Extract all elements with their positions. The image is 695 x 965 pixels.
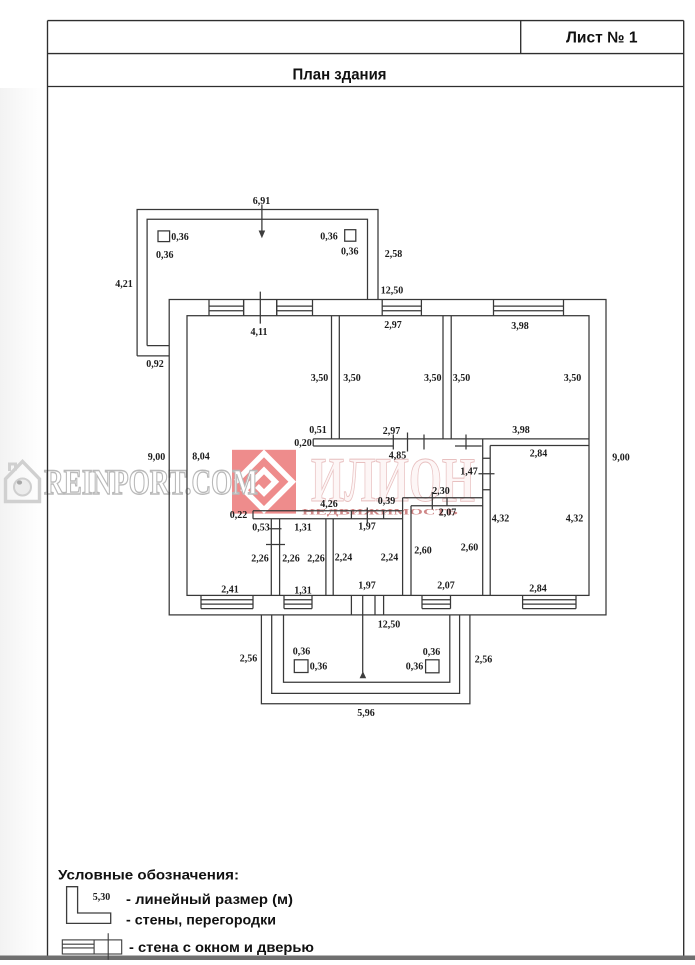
svg-text:4,21: 4,21 <box>115 279 133 290</box>
svg-text:12,50: 12,50 <box>378 620 401 631</box>
svg-text:2,56: 2,56 <box>475 655 493 666</box>
svg-text:5,30: 5,30 <box>93 892 111 903</box>
svg-text:6,91: 6,91 <box>253 196 271 207</box>
svg-text:Условные обозначения:: Условные обозначения: <box>58 867 239 883</box>
svg-text:1,97: 1,97 <box>358 581 376 592</box>
svg-text:3,50: 3,50 <box>424 373 442 384</box>
svg-text:2,41: 2,41 <box>221 585 239 596</box>
svg-text:0,36: 0,36 <box>171 232 189 243</box>
svg-text:Лист № 1: Лист № 1 <box>566 30 638 47</box>
svg-text:2,07: 2,07 <box>439 508 457 519</box>
svg-text:2,26: 2,26 <box>282 554 300 565</box>
svg-text:REINPORT.COM: REINPORT.COM <box>44 462 258 502</box>
svg-text:8,04: 8,04 <box>192 452 210 463</box>
svg-text:0,39: 0,39 <box>378 496 396 507</box>
svg-text:9,00: 9,00 <box>148 452 166 463</box>
svg-text:3,50: 3,50 <box>311 373 329 384</box>
svg-text:2,97: 2,97 <box>383 426 401 437</box>
svg-text:3,50: 3,50 <box>564 373 582 384</box>
svg-text:0,51: 0,51 <box>309 425 327 436</box>
svg-text:2,07: 2,07 <box>437 581 455 592</box>
svg-text:2,26: 2,26 <box>307 554 325 565</box>
svg-text:1,31: 1,31 <box>294 523 312 534</box>
svg-text:3,98: 3,98 <box>512 425 530 436</box>
svg-text:0,36: 0,36 <box>341 247 359 258</box>
svg-text:0,36: 0,36 <box>406 662 424 673</box>
svg-text:0,36: 0,36 <box>320 232 338 243</box>
svg-text:2,24: 2,24 <box>381 553 399 564</box>
svg-text:4,32: 4,32 <box>566 514 584 525</box>
svg-text:0,20: 0,20 <box>294 438 312 449</box>
svg-text:4,85: 4,85 <box>389 451 407 462</box>
svg-text:1,47: 1,47 <box>460 467 478 478</box>
svg-text:2,84: 2,84 <box>530 449 548 460</box>
svg-text:2,30: 2,30 <box>432 486 450 497</box>
svg-text:4,26: 4,26 <box>320 499 338 510</box>
svg-text:2,84: 2,84 <box>529 584 547 595</box>
svg-text:5,96: 5,96 <box>357 708 375 719</box>
svg-text:0,36: 0,36 <box>156 250 174 261</box>
svg-text:0,36: 0,36 <box>310 662 328 673</box>
svg-text:4,11: 4,11 <box>251 327 268 338</box>
svg-text:12,50: 12,50 <box>381 286 404 297</box>
svg-text:9,00: 9,00 <box>612 453 630 464</box>
svg-text:- стена с окном и дверью: - стена с окном и дверью <box>129 939 314 955</box>
svg-text:План здания: План здания <box>293 67 387 84</box>
svg-text:2,26: 2,26 <box>251 554 269 565</box>
svg-text:- линейный размер (м): - линейный размер (м) <box>126 891 293 907</box>
svg-text:2,24: 2,24 <box>335 553 353 564</box>
svg-text:0,92: 0,92 <box>146 359 164 370</box>
svg-text:0,22: 0,22 <box>230 510 248 521</box>
svg-text:0,53: 0,53 <box>252 523 270 534</box>
svg-text:2,56: 2,56 <box>240 654 258 665</box>
svg-text:2,60: 2,60 <box>461 543 479 554</box>
svg-text:1,31: 1,31 <box>294 586 312 597</box>
svg-text:- стены, перегородки: - стены, перегородки <box>126 912 276 928</box>
svg-text:0,36: 0,36 <box>423 647 441 658</box>
svg-text:2,97: 2,97 <box>384 320 402 331</box>
svg-text:4,32: 4,32 <box>492 514 510 525</box>
svg-text:3,98: 3,98 <box>511 321 529 332</box>
svg-text:2,58: 2,58 <box>385 249 403 260</box>
svg-text:3,50: 3,50 <box>453 373 471 384</box>
svg-text:2,60: 2,60 <box>414 546 432 557</box>
svg-text:3,50: 3,50 <box>343 373 361 384</box>
svg-text:0,36: 0,36 <box>293 647 311 658</box>
svg-text:1,97: 1,97 <box>358 522 376 533</box>
